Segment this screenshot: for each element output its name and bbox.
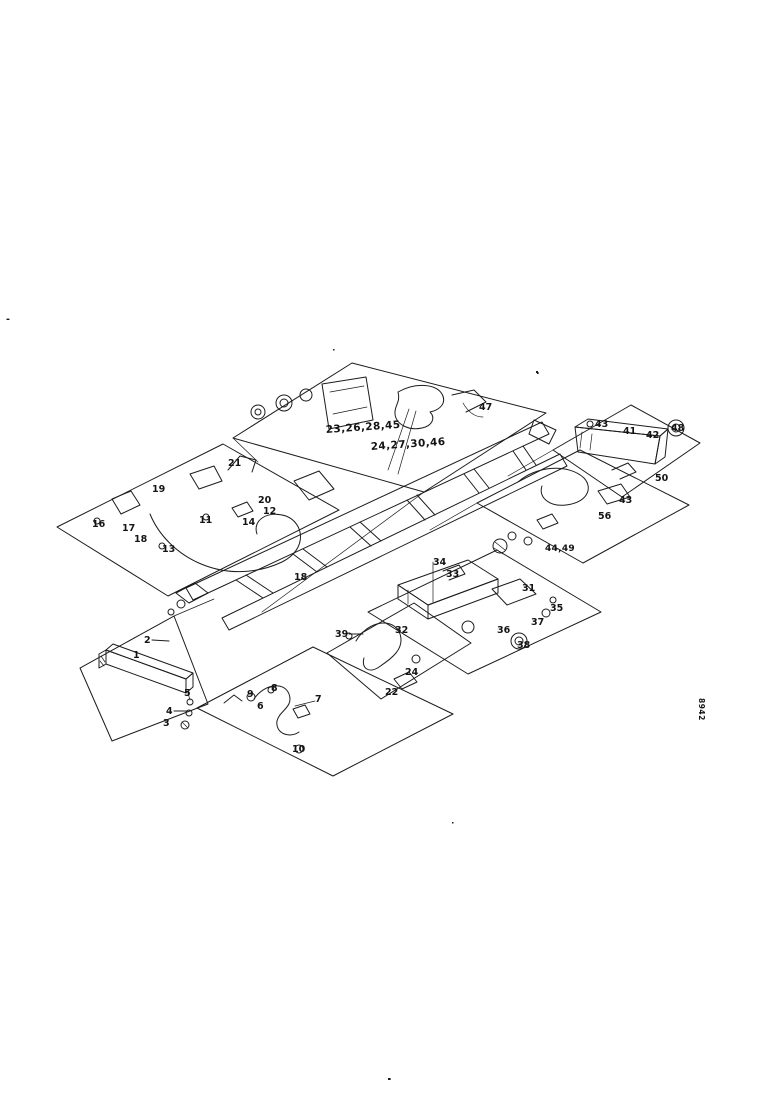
callout-23,26,28,45: 23,26,28,45 [325,419,400,436]
panel-upper-right [553,405,700,497]
callout-32: 32 [395,625,408,636]
part-sketch [190,466,222,489]
part-sketch [106,644,193,679]
callout-19: 19 [152,484,165,495]
scanned-diagram-page: 23,26,28,4524,27,30,46472119161718131114… [0,0,777,1100]
part-sketch [224,695,242,703]
callout-43: 43 [619,495,632,506]
callout-18: 18 [294,572,308,583]
leader-line [152,640,169,641]
diagram-canvas: 23,26,28,4524,27,30,46472119161718131114… [0,0,777,1100]
part-sketch [395,385,444,428]
callout-14: 14 [242,517,256,528]
callout-10: 10 [292,744,306,755]
part-sketch [518,468,588,505]
callout-24,27,30,46: 24,27,30,46 [370,436,445,453]
callout-37: 37 [531,617,544,628]
callout-.: . [536,366,540,377]
callout-20: 20 [258,495,272,506]
part-sketch [232,502,253,517]
callout-44,49: 44,49 [545,544,575,554]
callout-50: 50 [655,473,669,484]
callout-31: 31 [522,583,535,594]
callout-8942: 8942 [697,698,706,721]
callout-41: 41 [623,426,636,437]
callout-42: 42 [646,430,659,441]
callout-9: 9 [247,689,254,700]
callout-5: 5 [184,688,191,699]
callout-18: 18 [134,534,148,545]
callout-56: 56 [598,511,612,522]
panel-cable [327,603,471,699]
callout-8: 8 [271,683,278,694]
callout-layer: 23,26,28,4524,27,30,46472119161718131114… [6,314,706,1083]
callout-1: 1 [133,650,140,661]
callout-38: 38 [517,640,531,651]
callout-21: 21 [228,458,241,469]
part-sketch [428,579,498,619]
callout-22: 22 [385,687,398,698]
callout-48: 48 [671,423,685,434]
part-sketch [99,650,106,668]
callout-16: 16 [92,519,106,530]
callout-11: 11 [199,515,212,526]
callout-13: 13 [162,544,175,555]
part-sketch [293,705,310,718]
callout-4: 4 [166,706,173,717]
callout-47: 47 [479,402,492,413]
callout-24: 24 [405,667,419,678]
part-sketch [537,514,558,529]
callout-6: 6 [257,701,264,712]
callout-.: . [388,1072,392,1083]
callout-43: 43 [595,419,608,430]
callout-2: 2 [144,635,151,646]
callout-36: 36 [497,625,511,636]
callout-35: 35 [550,603,563,614]
panel-mid-right [477,450,689,563]
panel-lower-right [368,550,601,674]
callout-7: 7 [315,694,322,705]
part-sketch [112,491,140,514]
callout--: - [6,314,10,325]
callout-33: 33 [446,569,459,580]
scan-noise [333,349,538,1080]
callout-17: 17 [122,523,135,534]
callout-34: 34 [433,557,447,568]
callout-12: 12 [263,506,276,517]
callout-39: 39 [335,629,348,640]
part-sketch [150,514,301,572]
callout-3: 3 [163,718,170,729]
part-sketch [529,420,556,444]
